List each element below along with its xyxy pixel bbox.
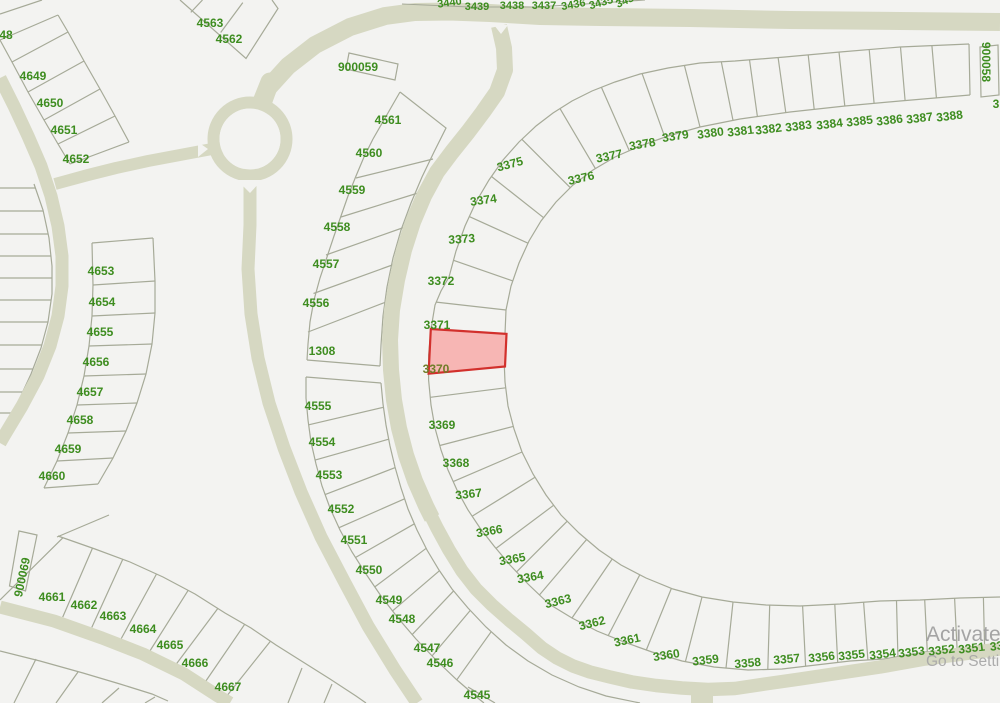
svg-text:4667: 4667: [215, 680, 242, 694]
svg-text:4554: 4554: [309, 435, 336, 449]
svg-text:4553: 4553: [316, 468, 343, 482]
svg-text:4552: 4552: [328, 502, 355, 516]
svg-text:4656: 4656: [83, 355, 110, 369]
svg-text:4659: 4659: [55, 442, 82, 456]
svg-text:4558: 4558: [324, 220, 351, 234]
svg-text:3358: 3358: [734, 655, 762, 671]
svg-text:3437: 3437: [532, 0, 556, 12]
svg-text:4663: 4663: [100, 609, 127, 623]
svg-text:4653: 4653: [88, 264, 115, 278]
svg-text:4551: 4551: [341, 533, 368, 547]
svg-text:3373: 3373: [448, 231, 476, 247]
svg-text:3439: 3439: [465, 1, 489, 13]
svg-text:4545: 4545: [464, 688, 491, 702]
svg-text:4549: 4549: [376, 593, 403, 607]
svg-text:900059: 900059: [338, 60, 378, 74]
svg-text:4664: 4664: [130, 622, 157, 636]
svg-text:3372: 3372: [428, 274, 455, 288]
svg-text:4660: 4660: [39, 469, 66, 483]
svg-text:4559: 4559: [339, 183, 366, 197]
svg-text:3357: 3357: [773, 651, 801, 667]
svg-text:4561: 4561: [375, 113, 402, 127]
svg-text:3367: 3367: [455, 486, 483, 503]
svg-text:48: 48: [0, 28, 13, 42]
svg-text:3: 3: [993, 97, 1000, 111]
svg-text:4649: 4649: [20, 69, 47, 83]
svg-text:1308: 1308: [309, 344, 336, 358]
svg-text:3370: 3370: [423, 362, 450, 376]
svg-text:4557: 4557: [313, 257, 340, 271]
svg-text:4560: 4560: [356, 146, 383, 160]
svg-text:4651: 4651: [51, 123, 78, 137]
svg-text:3355: 3355: [838, 647, 866, 664]
svg-text:3371: 3371: [424, 318, 451, 332]
svg-text:4661: 4661: [39, 590, 66, 604]
svg-text:4563: 4563: [197, 16, 224, 30]
svg-text:4662: 4662: [71, 598, 98, 612]
svg-text:4658: 4658: [67, 413, 94, 427]
svg-text:4657: 4657: [77, 385, 104, 399]
svg-text:4555: 4555: [305, 399, 332, 413]
svg-text:4655: 4655: [87, 325, 114, 339]
svg-text:4666: 4666: [182, 656, 209, 670]
svg-text:900058: 900058: [979, 42, 993, 82]
svg-text:4652: 4652: [63, 152, 90, 166]
svg-text:4665: 4665: [157, 638, 184, 652]
svg-text:4550: 4550: [356, 563, 383, 577]
svg-text:3356: 3356: [808, 649, 836, 666]
svg-text:4654: 4654: [89, 295, 116, 309]
svg-text:3369: 3369: [429, 418, 456, 432]
svg-text:4547: 4547: [414, 641, 441, 655]
svg-text:3438: 3438: [500, 0, 524, 12]
svg-text:4546: 4546: [427, 656, 454, 670]
svg-text:Go to Settings to a: Go to Settings to a: [926, 653, 1000, 670]
svg-text:4556: 4556: [303, 296, 330, 310]
svg-text:3368: 3368: [443, 456, 470, 470]
svg-text:4548: 4548: [389, 612, 416, 626]
svg-text:4650: 4650: [37, 96, 64, 110]
svg-text:4562: 4562: [216, 32, 243, 46]
svg-text:Activate Windo: Activate Windo: [926, 623, 1000, 646]
